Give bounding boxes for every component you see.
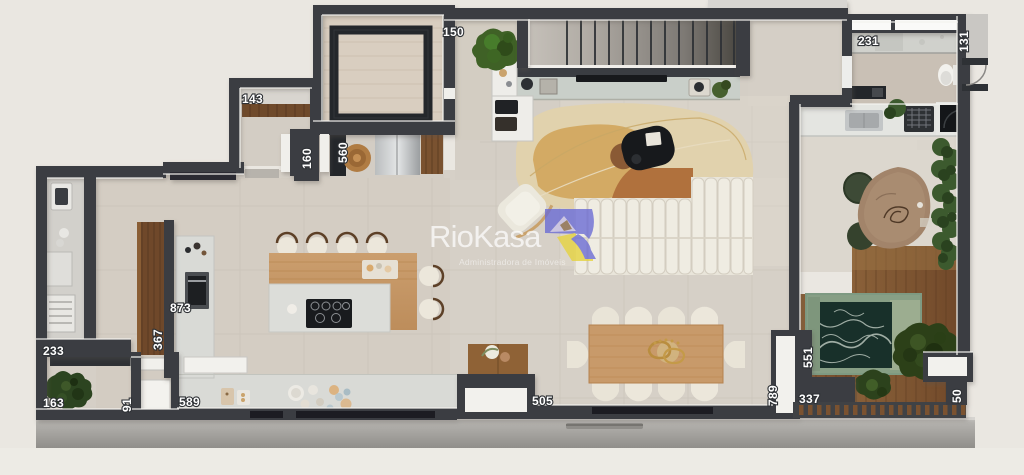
svg-text:560: 560 bbox=[336, 142, 350, 163]
svg-text:789: 789 bbox=[766, 385, 780, 406]
svg-text:163: 163 bbox=[43, 396, 64, 410]
svg-text:150: 150 bbox=[443, 25, 464, 39]
svg-text:367: 367 bbox=[151, 329, 165, 350]
svg-text:131: 131 bbox=[957, 31, 971, 52]
svg-text:91: 91 bbox=[120, 398, 134, 412]
svg-text:50: 50 bbox=[950, 389, 964, 403]
svg-text:589: 589 bbox=[179, 395, 200, 409]
svg-text:551: 551 bbox=[801, 347, 815, 368]
svg-text:143: 143 bbox=[242, 92, 263, 106]
svg-text:Administradora de Imóveis: Administradora de Imóveis bbox=[459, 257, 566, 267]
svg-text:233: 233 bbox=[43, 344, 64, 358]
svg-text:873: 873 bbox=[170, 301, 191, 315]
svg-text:505: 505 bbox=[532, 394, 553, 408]
svg-text:160: 160 bbox=[300, 148, 314, 169]
svg-text:RioKasa: RioKasa bbox=[429, 219, 542, 254]
svg-text:231: 231 bbox=[858, 34, 879, 48]
svg-text:337: 337 bbox=[799, 392, 820, 406]
